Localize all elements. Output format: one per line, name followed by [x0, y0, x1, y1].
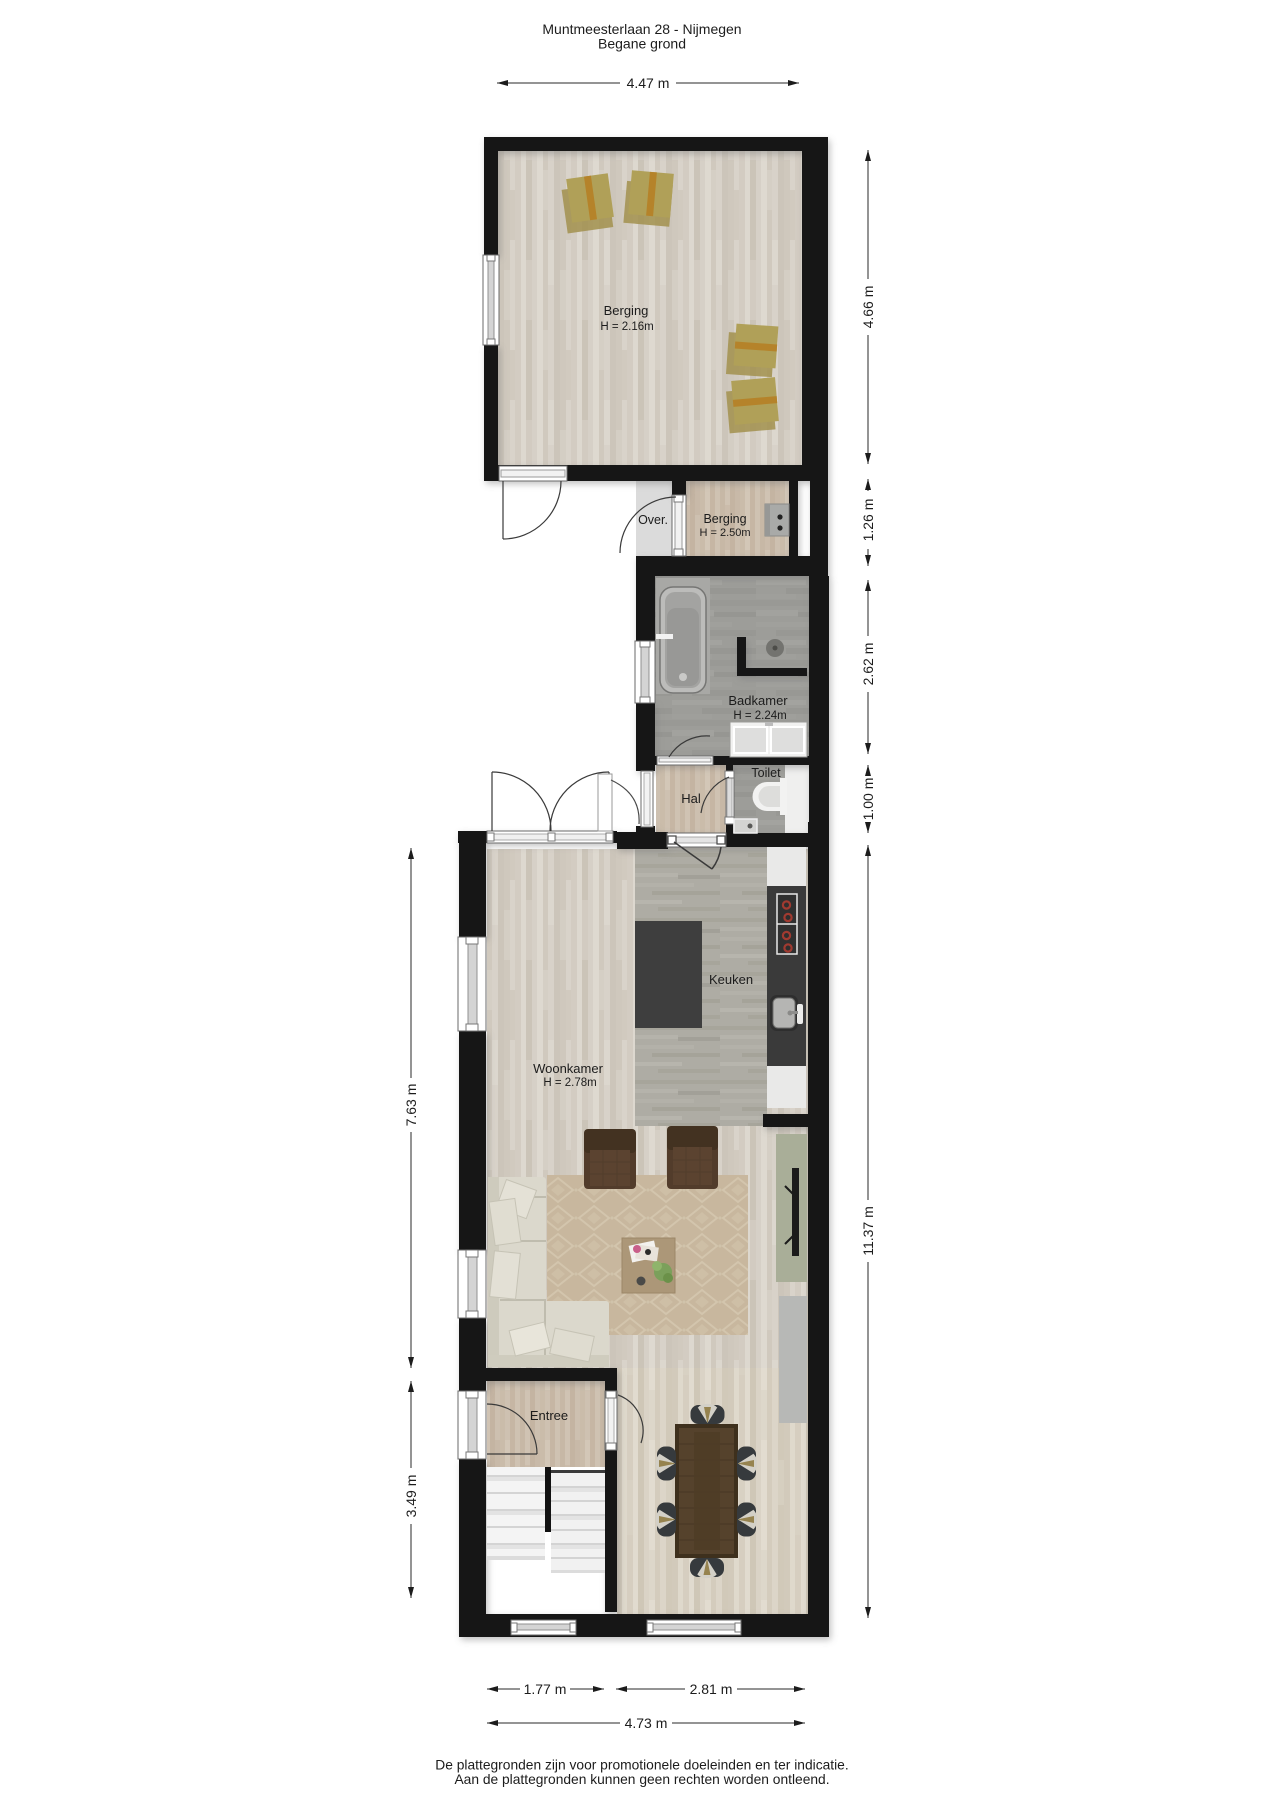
svg-text:1.26 m: 1.26 m	[860, 499, 876, 542]
svg-text:Over.: Over.	[638, 513, 668, 527]
svg-text:Entree: Entree	[530, 1408, 568, 1423]
svg-text:De plattegronden zijn voor pro: De plattegronden zijn voor promotionele …	[435, 1758, 848, 1773]
svg-text:Toilet: Toilet	[751, 766, 781, 780]
svg-text:1.00 m: 1.00 m	[860, 778, 876, 821]
svg-text:Begane grond: Begane grond	[598, 36, 686, 52]
svg-text:Berging: Berging	[604, 303, 649, 318]
svg-text:Hal: Hal	[681, 791, 701, 806]
svg-text:2.62 m: 2.62 m	[860, 643, 876, 686]
svg-text:1.77 m: 1.77 m	[524, 1681, 567, 1697]
svg-text:4.73 m: 4.73 m	[625, 1715, 668, 1731]
svg-text:4.66 m: 4.66 m	[860, 286, 876, 329]
svg-text:Berging: Berging	[703, 512, 746, 526]
svg-text:11.37 m: 11.37 m	[860, 1206, 876, 1256]
svg-text:H = 2.78m: H = 2.78m	[543, 1077, 596, 1089]
svg-text:7.63 m: 7.63 m	[403, 1084, 419, 1127]
svg-text:3.49 m: 3.49 m	[403, 1475, 419, 1518]
svg-text:Aan de plattegronden kunnen ge: Aan de plattegronden kunnen geen rechten…	[454, 1772, 829, 1787]
svg-text:2.81 m: 2.81 m	[690, 1681, 733, 1697]
svg-text:Badkamer: Badkamer	[728, 693, 788, 708]
svg-text:H = 2.16m: H = 2.16m	[600, 321, 653, 333]
svg-text:4.47 m: 4.47 m	[627, 75, 670, 91]
svg-text:Woonkamer: Woonkamer	[533, 1061, 604, 1076]
svg-text:H = 2.24m: H = 2.24m	[733, 710, 786, 722]
svg-text:Keuken: Keuken	[709, 972, 753, 987]
svg-text:H = 2.50m: H = 2.50m	[699, 527, 750, 539]
